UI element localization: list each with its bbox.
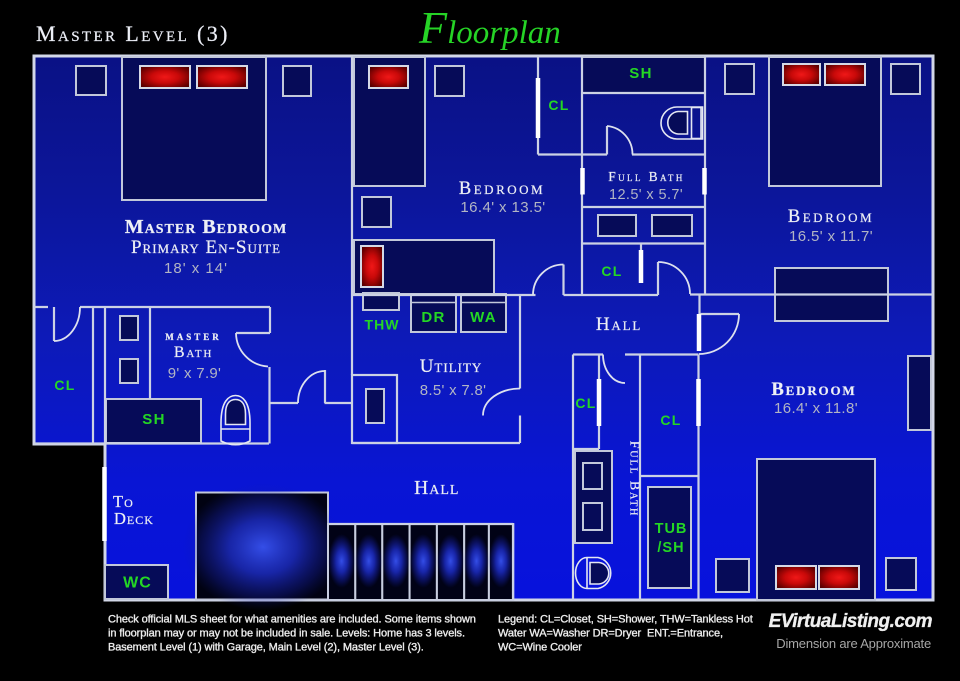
svg-text:SH: SH [142, 411, 165, 428]
svg-text:Primary En-Suite: Primary En-Suite [131, 237, 281, 258]
svg-text:Hall: Hall [414, 478, 459, 499]
svg-text:Deck: Deck [114, 509, 154, 528]
svg-text:Bedroom: Bedroom [772, 380, 857, 400]
svg-text:16.4' x 13.5': 16.4' x 13.5' [460, 199, 545, 216]
svg-text:Full Bath: Full Bath [627, 441, 642, 518]
svg-text:Utility: Utility [420, 356, 483, 377]
svg-text:CL: CL [601, 263, 622, 279]
svg-text:Check official MLS sheet for w: Check official MLS sheet for what amenit… [108, 614, 476, 626]
svg-text:Full Bath: Full Bath [608, 169, 684, 184]
svg-text:CL: CL [575, 395, 596, 411]
svg-text:Dimension are Approximate: Dimension are Approximate [776, 636, 931, 651]
svg-text:in floorplan may or may not be: in floorplan may or may not be included … [108, 628, 465, 640]
svg-text:Bedroom: Bedroom [459, 179, 545, 199]
svg-text:WC=Wine Cooler: WC=Wine Cooler [498, 642, 582, 654]
svg-text:Master Level (3): Master Level (3) [36, 21, 230, 46]
svg-text:WC: WC [123, 575, 152, 592]
svg-text:Master Bedroom: Master Bedroom [125, 216, 287, 238]
svg-text:Water WA=Washer DR=Dryer ENT.: Water WA=Washer DR=Dryer ENT.=Entrance, [498, 628, 723, 640]
svg-text:master: master [165, 329, 222, 343]
svg-text:DR: DR [421, 309, 445, 326]
svg-text:Hall: Hall [596, 314, 642, 335]
svg-text:EVirtuaListing.com: EVirtuaListing.com [769, 611, 933, 632]
svg-text:8.5' x 7.8': 8.5' x 7.8' [420, 382, 487, 399]
svg-text:CL: CL [660, 412, 681, 428]
svg-text:CL: CL [54, 377, 75, 393]
svg-text:16.4' x 11.8': 16.4' x 11.8' [774, 400, 858, 417]
svg-text:Basement Level (1) with Garage: Basement Level (1) with Garage, Main Lev… [108, 642, 424, 654]
svg-text:THW: THW [365, 317, 400, 333]
svg-text:WA: WA [470, 309, 497, 326]
svg-text:Bath: Bath [174, 344, 213, 361]
svg-text:Bedroom: Bedroom [788, 207, 874, 227]
svg-text:SH: SH [629, 65, 652, 82]
svg-text:18' x 14': 18' x 14' [164, 260, 228, 277]
svg-text:TUB: TUB [655, 521, 688, 537]
svg-text:12.5' x 5.7': 12.5' x 5.7' [609, 187, 683, 203]
svg-text:16.5' x 11.7': 16.5' x 11.7' [789, 228, 873, 245]
svg-text:/SH: /SH [657, 540, 684, 556]
svg-text:CL: CL [548, 97, 569, 113]
svg-text:9' x 7.9': 9' x 7.9' [168, 365, 221, 382]
svg-text:Legend: CL=Closet, SH=Shower,: Legend: CL=Closet, SH=Shower, THW=Tankle… [498, 614, 753, 626]
